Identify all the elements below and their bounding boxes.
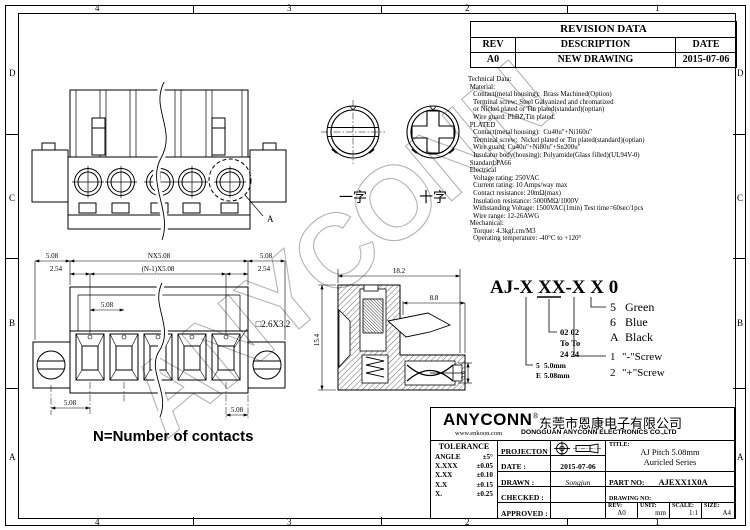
tech-line: Technical Data: [468,76,734,84]
zone-label-top: 3 [287,3,292,13]
zone-tick [5,388,18,389]
scale-cell: SCALE: 1:1 [670,503,702,518]
revision-table: REVISION DATA REV DESCRIPTION DATE A0 NE… [470,21,737,68]
tech-line: Torque: 4.3kgf.cm/M3 [468,228,734,236]
tol-value: ±0.10 [476,471,493,480]
zone-label-right: A [737,452,744,462]
zone-tick [381,517,382,526]
dim-half-right: 2.54 [258,265,271,273]
technical-data-block: Technical Data: Material: Contact(metal … [468,76,734,243]
tech-line: Terminal screw: Nickel plated or Tin pla… [468,137,734,145]
drawing-sheet: 4 3 2 1 4 3 2 1 D C B A D C B A ANYCONN … [0,0,750,530]
checked-label-cell: CHECKED : [498,487,551,502]
projection-label-cell: PROJECTON [498,441,551,456]
dim-bottom-right: 5.08 [231,406,244,414]
size-cell: SIZE: A4 [702,503,734,518]
brand-name: ANYCONN [443,410,532,429]
tech-line: Wire guard: PhBZ,Tin plated. [468,114,734,122]
dim-pitch-right: 5.08 [260,252,273,260]
date-value-cell: 2015-07-06 [551,456,606,471]
dim-section-height: 15.4 [313,333,321,346]
drawing-title-line2: Auricled Series [606,457,734,467]
pitch-value: 5.08mm [544,371,570,380]
title-cell: TITLE: AJ Pitch 5.08mm Auricled Series [606,441,734,472]
date-label: DATE : [498,462,526,471]
tol-label: X.XXX [435,462,458,471]
drawing-title-line1: AJ Pitch 5.08mm [606,447,734,457]
section-view: 18.2 8.8 15.4 3.6 [310,255,475,415]
first-angle-projection-icon [551,441,606,456]
range-row: 24 24 [560,349,580,359]
drawn-value-cell: Songjun [551,472,606,487]
zone-tick [5,134,18,135]
revision-description: NEW DRAWING [516,53,676,67]
tech-line: Wire guard: Cu40u"+Ni80u"+Sn200u" [468,144,734,152]
position-range: 02 02 To To 24 24 [560,327,580,359]
rev-col-header: REV [471,38,516,52]
dim-section-width: 18.2 [393,267,406,275]
color-value: Blue [625,315,648,329]
tech-line: Insulation resistance: 5000MΩ/1000V [468,198,734,206]
flat-screw-label: 一字 [339,190,367,206]
registered-mark: ® [532,412,538,421]
pitch-value: 5.0mm [544,361,567,370]
tech-line: or Nickel plated or Tin plated(standard)… [468,106,734,114]
pictorial-top-view: A [30,82,300,240]
dim-overall: NX5.08 [148,252,171,260]
zone-tick [733,258,746,259]
part-no-label: PART NO: [606,478,645,487]
approved-label-cell: APPROVED : [498,503,551,518]
tech-line: Material: [468,84,734,92]
zone-tick [381,5,382,14]
screw-value: "-"Screw [622,351,662,363]
tech-line: Voltage rating: 250VAC [468,175,734,183]
screw-value: "+"Screw [622,367,665,379]
revision-table-header: REV DESCRIPTION DATE [471,38,736,53]
date-col-header: DATE [676,38,736,52]
drawn-label-cell: DRAWN : [498,472,551,487]
tol-value: ±5° [483,453,493,462]
dim-bottom-left: 5.08 [64,399,77,407]
zone-label-bottom: 3 [287,517,292,527]
tech-line: Operating temperature: -40°C to +120° [468,235,734,243]
unit-cell: UNIT: mm [638,503,670,518]
section-body [338,285,465,390]
company-name-en: DONGGUAN ANYCONN ELECTRONICS CO.,LTD [521,429,677,436]
company-logo: ANYCONN® [443,410,539,430]
revision-date: 2015-07-06 [676,53,736,67]
tol-label: ANGLE [435,453,461,462]
dim-section-depth: 8.8 [430,294,439,302]
drawing-no-label: DRAWING NO: [606,496,651,502]
screw-head-views: 一字 十字 [305,92,475,210]
color-options: 5 Green 6 Blue A Black [610,300,654,344]
revision-row: A0 NEW DRAWING 2015-07-06 [471,53,736,67]
flat-screw-head-icon [321,100,385,164]
zone-label-left: C [9,193,15,203]
date-value: 2015-07-06 [560,462,595,471]
tech-line: Terminal screw: Steel Galvanized and chr… [468,99,734,107]
tech-line: Withstanding Voltage: 1500VAC(1min) Test… [468,205,734,213]
zone-tick [5,258,18,259]
range-row: 02 02 [560,327,579,337]
dim-pitch-left: 5.08 [46,252,59,260]
color-key: 6 [610,315,616,329]
color-value: Black [625,330,653,344]
tolerance-header: TOLERANCE [431,441,497,453]
date-label-cell: DATE : [498,456,551,471]
dim-inner-pitch: 5.08 [101,301,114,309]
color-key: 5 [610,300,616,314]
unit-value: mm [638,509,669,517]
zone-label-bottom: 4 [95,517,100,527]
pitch-key: 5 [536,361,540,370]
tol-label: X. [435,490,442,499]
tol-label: X.X [435,481,447,490]
revision-table-title: REVISION DATA [471,22,736,38]
front-view: 5.08 NX5.08 5.08 2.54 (N-1)X5.08 2.54 5.… [30,245,305,430]
cross-screw-head-icon [407,106,459,158]
drawing-no-cell: DRAWING NO: [606,487,734,502]
tech-line: Current rating: 10 Amps/way max [468,182,734,190]
drawn-label: DRAWN : [498,478,534,487]
tol-label: X.XX [435,471,452,480]
zone-label-left: A [9,452,16,462]
part-number-key: AJ-X XX-X X 0 5 Green 6 Blue A Black 02 … [488,276,740,402]
dim-slot-size: □2.6X3.2 [256,319,290,329]
description-col-header: DESCRIPTION [516,38,676,52]
title-block: ANYCONN® 东莞市恩康电子有限公司 www.enkoon.com DONG… [430,407,735,519]
dim-half-left: 2.54 [50,265,63,273]
tech-line: Insulator body(housing): Polyamide(Glass… [468,152,734,160]
zone-label-top: 1 [655,3,660,13]
zone-tick [733,134,746,135]
part-code: AJ-X XX-X X 0 [490,277,618,298]
rev-value: A0 [606,509,637,517]
tech-line: Wire range: 12-26AWG [468,213,734,221]
tech-line: Contact(metal housing): Brass Machined(O… [468,91,734,99]
drawn-value: Songjun [566,478,591,487]
zone-tick [193,5,194,14]
range-row: To To [560,338,580,348]
projection-label: PROJECTON [498,447,548,456]
zone-label-left: D [9,68,16,78]
cross-screw-label: 十字 [419,190,447,206]
pitch-options: 5 5.0mm E 5.08mm [536,361,570,380]
tolerance-box: TOLERANCE ANGLE±5° X.XXX±0.05 X.XX±0.10 … [431,441,498,518]
tech-line: PLATED [468,122,734,130]
color-key: A [610,330,619,344]
zone-tick [567,5,568,14]
rev-cell: REV: A0 [606,503,638,518]
scale-value: 1:1 [670,509,701,517]
contacts-note: N=Number of contacts [93,428,253,445]
tech-line: Contact resistance: 20mΩ(max) [468,190,734,198]
checked-label: CHECKED : [498,493,544,502]
dim-centers: (N-1)X5.08 [142,265,175,273]
company-website: www.enkoon.com [455,430,502,437]
approved-value-cell [551,503,606,518]
tech-line: Standard:PA66 [468,160,734,168]
detail-a-label: A [267,214,274,224]
tol-value: ±0.15 [476,481,493,490]
zone-label-top: 2 [465,3,470,13]
screw-key: 2 [610,367,616,379]
tol-value: ±0.25 [476,490,493,499]
screw-key: 1 [610,351,616,363]
tech-line: Electrical [468,167,734,175]
pitch-key: E [536,371,541,380]
company-header: ANYCONN® 东莞市恩康电子有限公司 www.enkoon.com DONG… [431,408,734,441]
projection-symbol-cell [551,441,606,456]
tech-line: Mechanical: [468,220,734,228]
dim-section-tail: 3.6 [461,371,467,379]
part-no-value: AJEXX1X0A [649,477,708,487]
zone-label-top: 4 [95,3,100,13]
tech-line: Contact(metal housing): Cu40u"+Ni160u" [468,129,734,137]
title-label: TITLE: [609,442,629,448]
part-no-cell: PART NO: AJEXX1X0A [606,472,734,487]
size-value: A4 [702,509,734,517]
zone-label-right: D [737,68,744,78]
screw-options: 1 "-"Screw 2 "+"Screw [610,351,665,379]
zone-label-left: B [9,318,15,328]
revision-rev: A0 [471,53,516,67]
zone-label-right: C [737,193,743,203]
color-value: Green [625,300,654,314]
approved-label: APPROVED : [498,509,548,518]
zone-tick [193,517,194,526]
checked-value-cell [551,487,606,502]
tol-value: ±0.05 [476,462,493,471]
